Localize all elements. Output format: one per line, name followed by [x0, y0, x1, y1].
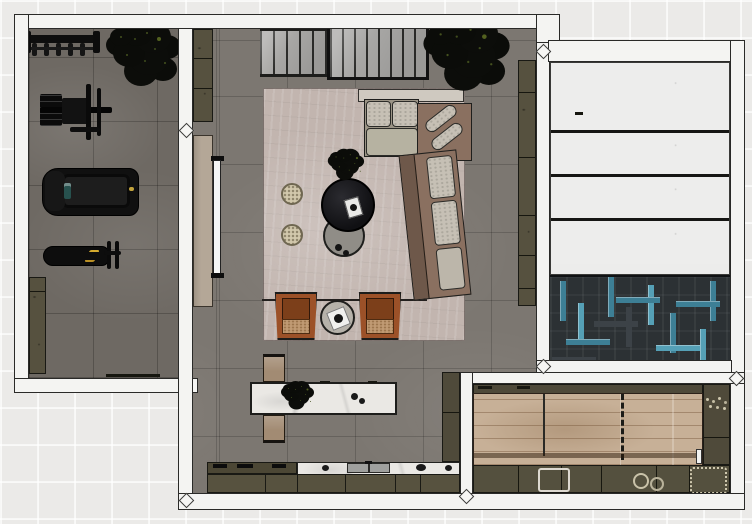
- wall-top: [14, 14, 560, 29]
- kitchen-tall-cabinet: [442, 372, 460, 462]
- white-panel-4: [551, 221, 729, 264]
- island-bench-top: [263, 354, 285, 382]
- burner-3: [272, 464, 286, 468]
- white-panel-1: [551, 63, 729, 133]
- machine-body: [62, 98, 88, 124]
- island-bench-bottom: [263, 415, 285, 443]
- kitchen-sink: [347, 463, 390, 473]
- plank: [566, 339, 610, 345]
- counter-item-2: [416, 464, 426, 471]
- island-knob-1: [351, 393, 358, 400]
- wall-living-right: [536, 28, 550, 374]
- cabinet-clutter: [706, 398, 709, 401]
- armchair-1: [274, 292, 318, 340]
- treadmill-screen: [64, 183, 71, 199]
- wall-annex-top: [548, 40, 745, 62]
- table-item-2: [343, 250, 349, 256]
- cabinet-divider: [519, 157, 535, 158]
- tv: [213, 160, 221, 274]
- media-cabinet: [193, 29, 213, 122]
- treadmill-belt: [62, 174, 130, 208]
- burner-2: [237, 464, 253, 468]
- plank: [648, 285, 654, 325]
- bench-pad: [43, 246, 109, 266]
- tv-bracket-bottom: [211, 273, 224, 278]
- armchair-cushion: [282, 319, 310, 334]
- floor-plan: [0, 0, 752, 524]
- cabinet-divider: [519, 288, 535, 289]
- side-table: [320, 300, 355, 335]
- plank: [608, 277, 614, 317]
- armchair-cushion: [366, 319, 394, 334]
- white-panel-2: [551, 133, 729, 177]
- side-table-bowl: [334, 314, 343, 323]
- sink-faucet: [365, 461, 372, 464]
- gym-sideboard-divider: [30, 291, 45, 292]
- white-panel-3: [551, 177, 729, 221]
- table-item-1: [335, 244, 342, 251]
- living-wall-cabinet-run: [518, 60, 536, 306]
- kitchen-base-cabinets: [207, 474, 460, 493]
- plank: [560, 281, 566, 321]
- kitchen-island: [250, 382, 397, 415]
- island-knob-2: [359, 398, 365, 404]
- treadmill-button: [129, 187, 134, 191]
- recroom-right-cabinet: [703, 384, 730, 465]
- panel-mark: [575, 112, 583, 115]
- annex-panel-section: [550, 62, 730, 275]
- plank: [656, 345, 700, 351]
- wall-annex-corner: [536, 15, 560, 43]
- plank: [676, 301, 720, 307]
- counter-tray-dotted: [690, 467, 727, 494]
- recroom-right-divider: [704, 437, 729, 438]
- counter-tray-white: [538, 468, 570, 492]
- sofa-back-cushion-2: [392, 101, 418, 127]
- sofa-seat-cushion: [366, 128, 418, 156]
- tray-bowl: [349, 203, 358, 212]
- slatted-partition: [260, 28, 328, 77]
- recroom-handle-2: [517, 386, 530, 389]
- annex-herringbone-floor: [550, 275, 730, 370]
- plank: [616, 297, 660, 303]
- table-plant: [330, 152, 344, 164]
- cabinet-divider: [519, 92, 535, 93]
- rack-endcap-right: [93, 31, 100, 53]
- sink-divider: [368, 464, 370, 472]
- burner-1: [213, 464, 227, 468]
- wall-recroom-left: [460, 372, 473, 503]
- gym-door-threshold: [106, 374, 160, 377]
- slatted-partition-framed: [327, 23, 429, 80]
- chaise-cushion-3: [436, 246, 466, 290]
- island-centerpiece: [283, 384, 296, 395]
- cabinet-divider: [519, 215, 535, 216]
- wall-annex-right: [730, 40, 745, 510]
- counter-rings-2: [650, 477, 664, 491]
- chaise-cushion-2: [431, 200, 461, 246]
- island-handle-1: [320, 381, 330, 383]
- tall-cabinet-divider: [443, 412, 459, 413]
- wood-kickplate: [696, 449, 702, 464]
- media-cabinet-divider-2: [194, 88, 212, 89]
- plank: [578, 303, 584, 343]
- rack-rail: [26, 35, 98, 43]
- wall-recroom-top: [460, 372, 745, 384]
- media-wall: [193, 135, 213, 307]
- counter-rings: [633, 473, 649, 489]
- island-handle-2: [368, 381, 377, 383]
- lane-line-solid: [543, 394, 545, 456]
- bench-rack-bar-1: [107, 241, 111, 269]
- rack-crossbar: [28, 47, 96, 50]
- gym-plant: [110, 28, 136, 50]
- lane-line-dashed: [621, 394, 624, 460]
- armchair-2: [358, 292, 402, 340]
- chaise-cushion-1: [426, 155, 456, 199]
- bench-rack-bar-2: [115, 241, 119, 269]
- counter-item-3: [445, 465, 452, 471]
- bench-rack-cross: [104, 251, 121, 255]
- media-cabinet-divider-1: [194, 58, 212, 59]
- cabinet-divider: [519, 255, 535, 256]
- treadmill-hood: [45, 171, 65, 211]
- machine-foot: [70, 127, 100, 132]
- wall-gym-bottom: [14, 378, 198, 393]
- pouf-2: [281, 224, 303, 246]
- plank: [594, 321, 638, 327]
- sofa-back-cushion-1: [366, 101, 391, 127]
- plank: [626, 307, 632, 347]
- wood-floor-dark-row: [474, 453, 702, 458]
- recroom-handle-1: [478, 386, 492, 389]
- pouf-1: [281, 183, 303, 205]
- wall-gym-living: [178, 28, 193, 510]
- wall-left: [14, 14, 29, 393]
- counter-item-1: [322, 465, 329, 471]
